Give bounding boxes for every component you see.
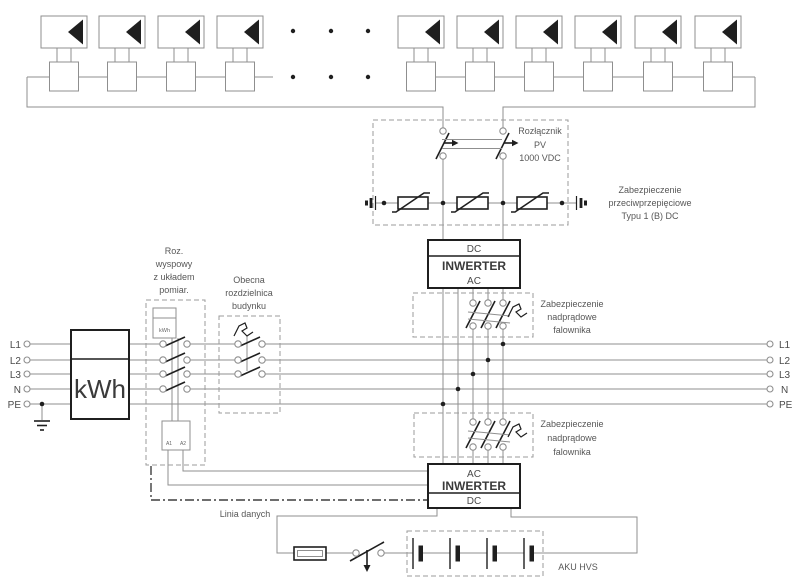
overcurrent-bottom-label: falownika xyxy=(553,447,591,457)
varistor xyxy=(392,193,430,212)
building-board-label: budynku xyxy=(232,301,266,311)
inverter-breaker-bottom xyxy=(466,419,527,450)
island-switch-label: z układem xyxy=(153,272,194,282)
building-board-label: Obecna xyxy=(233,275,265,285)
data-line-label: Linia danych xyxy=(220,509,271,519)
island-switch-label: pomiar. xyxy=(159,285,189,295)
junction-box xyxy=(407,62,436,91)
sub-meter-label: kWh xyxy=(159,328,170,334)
phase-label-right: L2 xyxy=(779,356,791,367)
inverter1-dc-label: DC xyxy=(467,244,481,255)
junction-box xyxy=(584,62,613,91)
coil-terminal-a2: A2 xyxy=(180,441,186,447)
battery-label: AKU HVS xyxy=(558,562,598,572)
pv-module xyxy=(41,16,87,91)
inverter2-dc-label: DC xyxy=(467,496,481,507)
inverter1-ac-label: AC xyxy=(467,276,481,287)
array-ellipsis xyxy=(291,29,370,79)
dc-fuse xyxy=(294,547,326,560)
phase-label-left: L3 xyxy=(10,370,22,381)
junction-box xyxy=(644,62,673,91)
earth-symbol-right xyxy=(577,196,586,210)
coil-terminal-a1: A1 xyxy=(166,441,172,447)
junction-box xyxy=(525,62,554,91)
overcurrent-bottom-label: nadprądowe xyxy=(547,433,597,443)
varistor xyxy=(451,193,489,212)
earth-symbol-left xyxy=(367,196,376,210)
pv-module xyxy=(575,16,621,91)
inverter-breaker-top xyxy=(466,300,527,329)
phase-label-right: L3 xyxy=(779,370,791,381)
island-switch-label: wyspowy xyxy=(155,259,193,269)
junction-box xyxy=(167,62,196,91)
pv-module xyxy=(398,16,444,91)
energy-meter-label: kWh xyxy=(74,374,126,404)
surge-label: Typu 1 (B) DC xyxy=(621,211,679,221)
pv-array xyxy=(41,16,741,91)
pv-module xyxy=(99,16,145,91)
varistor xyxy=(511,193,549,212)
inverter1-name: INWERTER xyxy=(442,259,506,273)
phase-label-left: L2 xyxy=(10,356,22,367)
overcurrent-top-label: nadprądowe xyxy=(547,312,597,322)
pv-disconnect-switch xyxy=(436,128,519,159)
phase-label-left: L1 xyxy=(10,340,22,351)
island-switch-label: Roz. xyxy=(165,246,184,256)
overcurrent-top-label: falownika xyxy=(553,325,591,335)
surge-label: Zabezpieczenie xyxy=(618,185,681,195)
pv-disconnect-label: PV xyxy=(534,140,546,150)
phase-label-left: PE xyxy=(8,400,22,411)
surge-label: przeciwprzepięciowe xyxy=(608,198,691,208)
pv-module xyxy=(516,16,562,91)
junction-box xyxy=(226,62,255,91)
phase-label-right: PE xyxy=(779,400,793,411)
building-breaker xyxy=(234,323,265,377)
junction-box xyxy=(466,62,495,91)
pv-module xyxy=(217,16,263,91)
pv-disconnect-label: 1000 VDC xyxy=(519,153,561,163)
overcurrent-bottom-label: Zabezpieczenie xyxy=(540,419,603,429)
building-board-box xyxy=(219,316,280,413)
schematic-canvas: Rozłącznik PV 1000 VDC Zabezpieczenie pr… xyxy=(0,0,800,585)
earth-symbol-pe xyxy=(34,421,50,430)
overcurrent-top-label: Zabezpieczenie xyxy=(540,299,603,309)
phase-label-right: L1 xyxy=(779,340,791,351)
junction-box xyxy=(108,62,137,91)
junction-box xyxy=(704,62,733,91)
pv-module xyxy=(695,16,741,91)
pv-system-schematic: Rozłącznik PV 1000 VDC Zabezpieczenie pr… xyxy=(0,0,800,585)
pv-module xyxy=(635,16,681,91)
wiring xyxy=(27,77,767,553)
pv-module xyxy=(457,16,503,91)
pv-module xyxy=(158,16,204,91)
inverter2-name: INWERTER xyxy=(442,479,506,493)
pv-disconnect-label: Rozłącznik xyxy=(518,126,562,136)
junction-box xyxy=(50,62,79,91)
phase-label-left: N xyxy=(14,385,21,396)
dc-switch xyxy=(350,542,384,572)
phase-label-right: N xyxy=(781,385,788,396)
building-board-label: rozdzielnica xyxy=(225,288,273,298)
battery-circuit xyxy=(294,538,534,572)
